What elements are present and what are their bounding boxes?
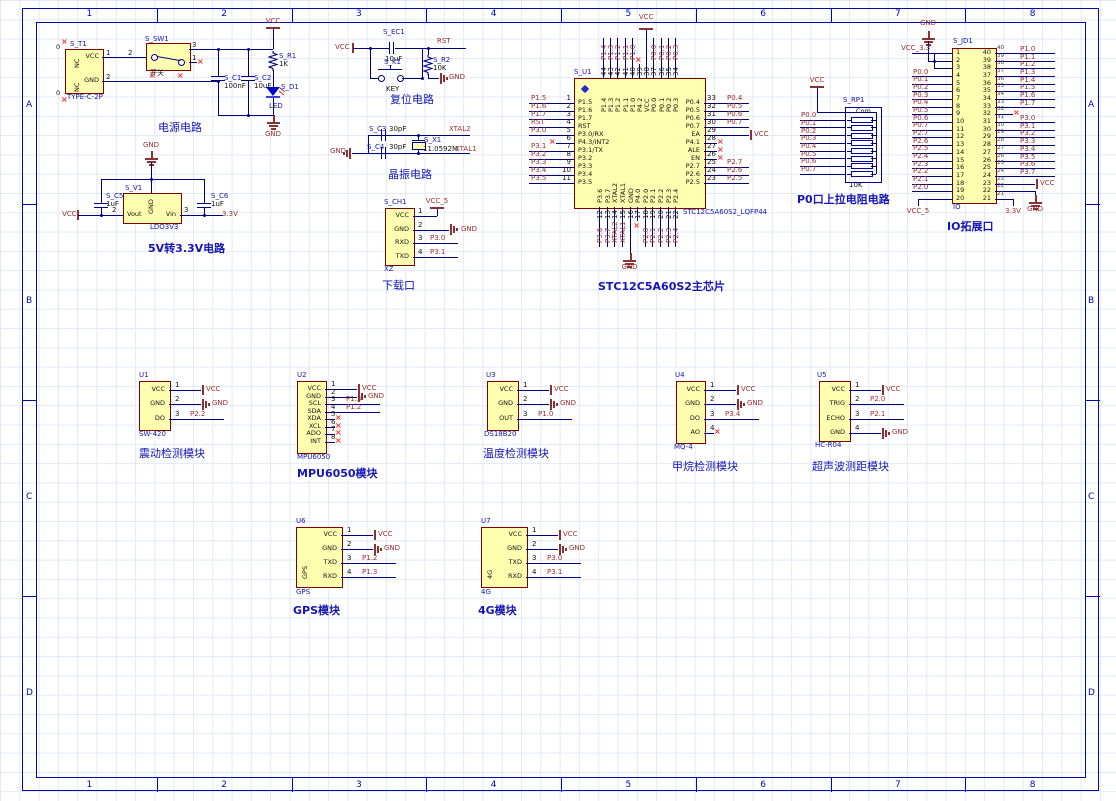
pin-number: 29	[983, 133, 991, 140]
net-label: P3.4	[1020, 146, 1035, 153]
designator: S_CH1	[384, 199, 407, 206]
frame-column-label: 1	[87, 10, 93, 19]
gnd-icon	[374, 544, 376, 555]
wire	[413, 230, 449, 231]
wire	[218, 81, 219, 115]
pin-number: 1	[331, 381, 335, 388]
pin-number: 22	[997, 184, 1004, 190]
wire	[169, 390, 201, 391]
wire	[918, 199, 919, 206]
wire	[696, 8, 697, 22]
wire	[630, 253, 632, 260]
net-label: P3.0	[430, 235, 445, 242]
net-label: P0.4	[727, 95, 742, 102]
net-label: XTAL1	[620, 221, 627, 243]
gnd-icon	[565, 548, 567, 551]
pin-name: P1.5	[578, 99, 592, 106]
pin-name: GND	[507, 545, 522, 552]
wire	[1013, 199, 1014, 206]
wire	[800, 174, 845, 175]
pin-number: 30	[997, 123, 1004, 129]
pin-number: 2	[347, 541, 351, 548]
designator: S_K1	[384, 59, 401, 66]
power-label: GND	[560, 400, 576, 407]
wire	[556, 143, 574, 144]
pin-number: 3	[532, 555, 536, 562]
pin-number: 37	[983, 72, 991, 79]
net-label: P0.4	[801, 143, 816, 150]
net-label: P0.7	[801, 166, 816, 173]
power-label: 3.3V	[1005, 208, 1021, 215]
contact-icon	[378, 75, 385, 82]
wire	[871, 120, 876, 121]
gnd-icon	[922, 38, 935, 40]
wire	[1086, 204, 1100, 205]
wire	[428, 48, 429, 55]
designator: S_JD1	[953, 38, 973, 45]
pin-number: 6	[956, 87, 960, 94]
wire	[529, 183, 574, 184]
pin-number: 1	[347, 527, 351, 534]
gnd-icon	[450, 224, 452, 235]
designator: S_X1	[424, 137, 441, 144]
nc-x-icon: ×	[197, 58, 204, 66]
power-label: GND	[212, 400, 228, 407]
designator: S_D1	[281, 84, 299, 91]
net-label: P1.3	[362, 569, 377, 576]
pin-number: 14	[956, 149, 964, 156]
pin-number: 27	[997, 146, 1004, 152]
pin-number: 25	[997, 161, 1004, 167]
pin-number: 34	[997, 92, 1004, 98]
wire	[413, 216, 437, 217]
wire	[341, 577, 396, 578]
net-label: P1.7	[531, 111, 546, 118]
pin-number: 30	[983, 126, 991, 133]
pin-number: 4	[347, 569, 351, 576]
section-title: 电源电路	[158, 122, 202, 133]
wire	[437, 209, 438, 216]
wire	[22, 400, 36, 401]
resistor-icon	[851, 117, 873, 123]
section-title: 复位电路	[390, 94, 434, 105]
pin-name: DO	[690, 415, 700, 422]
pin-number: 23	[983, 180, 991, 187]
designator: S_RP1	[843, 97, 864, 104]
pin-number: 2	[532, 541, 536, 548]
power-label: VCC	[886, 386, 901, 393]
net-label: P2.1	[913, 176, 928, 183]
wire	[341, 563, 396, 564]
wire	[325, 442, 335, 443]
net-label: P3.5	[531, 175, 546, 182]
pin-number: 38	[983, 64, 991, 71]
junction-dot	[247, 48, 250, 51]
net-label: P2.4	[913, 153, 928, 160]
power-label: GND	[920, 20, 936, 27]
pin-name: P1.7	[578, 115, 592, 122]
wire	[101, 179, 204, 180]
wire	[526, 549, 558, 550]
value: 10K	[433, 65, 447, 72]
power-label: VCC	[335, 44, 350, 51]
pin-number: 1	[192, 55, 196, 62]
gnd-icon	[443, 75, 445, 82]
nc-x-icon: ×	[61, 96, 68, 104]
designator: S_C1	[224, 75, 241, 82]
junction-dot	[217, 48, 220, 51]
pin-number: 7	[956, 95, 960, 102]
frame-row-label: D	[1088, 689, 1095, 698]
wire	[273, 29, 274, 49]
gnd-icon	[737, 399, 739, 410]
wire	[918, 199, 952, 200]
gnd-icon	[740, 401, 742, 408]
pin-number: 2	[710, 396, 714, 403]
wire	[102, 57, 146, 58]
pin-name: GND	[84, 77, 99, 84]
wire	[169, 404, 201, 405]
pin-number: 15	[956, 157, 964, 164]
pin-name: P2.2	[658, 189, 665, 203]
net-label: P1.0	[1020, 46, 1035, 53]
part-name: STC12C5A60S2_LQFP44	[683, 209, 767, 216]
wire	[151, 162, 152, 179]
pin-name: P2.4	[673, 189, 680, 203]
pin-name: P3.6	[597, 189, 604, 203]
power-label: VCC	[639, 14, 654, 21]
pin-number: 2	[112, 207, 116, 214]
pin-name: VCC	[323, 531, 337, 538]
resistor-icon	[851, 140, 873, 146]
value: 11.0592M	[423, 146, 458, 153]
pin-name: RXD	[323, 573, 337, 580]
frame-column-label: 8	[1030, 10, 1036, 19]
gnd-icon	[453, 226, 455, 233]
net-label: P3.2	[531, 151, 546, 158]
wire	[704, 183, 749, 184]
section-title: 超声波测距模块	[812, 461, 889, 472]
pin-number: 7	[567, 143, 571, 150]
value: 100nF	[224, 83, 246, 90]
pin-number: 24	[707, 167, 716, 174]
nc-x-icon: ×	[177, 72, 184, 80]
pin-number: 1	[710, 382, 714, 389]
power-label: VCC	[62, 211, 77, 218]
pin-number: 4	[855, 425, 859, 432]
wire	[378, 69, 402, 70]
junction-dot	[150, 178, 153, 181]
pin-name: GND	[830, 429, 845, 436]
power-label: VCC	[1040, 180, 1055, 187]
pin-number: 10	[956, 118, 964, 125]
pin-name: P1.6	[578, 107, 592, 114]
wire	[526, 577, 581, 578]
net-label: P3.1	[430, 249, 445, 256]
pin-number: 1	[106, 50, 110, 57]
pin-number: 24	[983, 172, 991, 179]
junction-dot	[100, 214, 103, 217]
wire	[995, 176, 1055, 177]
power-label: VCC	[741, 386, 756, 393]
pin-number: 8	[567, 151, 571, 158]
pin-number: 3	[956, 64, 960, 71]
wire	[517, 419, 572, 420]
pin-name: VCC	[151, 386, 165, 393]
wire	[704, 404, 736, 405]
pin-name: P4.3/INT2	[578, 139, 609, 146]
net-label: P1.6	[531, 103, 546, 110]
pin-name: VCC	[395, 212, 409, 219]
power-label: VCC	[563, 531, 578, 538]
schematic-canvas[interactable]: 1122334455667788AABBCCDDS_T1NCNCVCCGNDTY…	[0, 0, 1116, 801]
wire	[325, 389, 357, 390]
section-title: IO拓展口	[947, 221, 993, 232]
wire	[180, 215, 223, 216]
pin-name: P3.3	[578, 163, 592, 170]
pin-number: 4	[956, 72, 960, 79]
wire	[871, 127, 876, 128]
part-name: GPS	[296, 589, 310, 596]
part-name: MPU6050	[297, 454, 330, 461]
part-name: LDO3V3	[150, 224, 179, 231]
resistor-icon	[851, 171, 873, 177]
section-title: 5V转3.3V电路	[148, 243, 225, 254]
section-title: P0口上拉电阻电路	[797, 194, 890, 205]
power-label: GND	[143, 142, 159, 149]
value: 30pF	[389, 144, 406, 151]
wire	[871, 174, 876, 175]
wire	[696, 778, 697, 792]
power-label: VCC_3.3	[901, 45, 930, 52]
wire	[157, 778, 158, 792]
wire	[197, 203, 211, 204]
power-label: GND	[461, 226, 477, 233]
net-label: P3.0	[547, 555, 562, 562]
gnd-icon	[885, 430, 887, 437]
pin-number: 1	[855, 382, 859, 389]
resistor-icon	[851, 156, 873, 162]
power-label: GND	[1027, 206, 1043, 213]
net-label: P1.3	[1020, 69, 1035, 76]
pin-number: 1	[956, 49, 960, 56]
pin-name: INT	[310, 438, 321, 445]
wire	[876, 112, 877, 174]
pin-number: 29	[997, 130, 1004, 136]
pin-name: XTAL1	[620, 183, 627, 203]
pin-number: 32	[707, 103, 716, 110]
pin-number: 21	[983, 195, 991, 202]
section-title: 4G模块	[478, 605, 517, 616]
pin-number: 5	[567, 127, 571, 134]
pin-name: RXD	[508, 573, 522, 580]
power-label: GND	[449, 74, 465, 81]
pin-number: 32	[983, 110, 991, 117]
pin-name: VCC	[499, 386, 513, 393]
pin-name: P3.1/TX	[578, 147, 603, 154]
wire	[849, 404, 904, 405]
gnd-icon	[623, 260, 636, 262]
pin-name: P2.5	[686, 179, 700, 186]
pin-number: 16	[956, 164, 964, 171]
wire	[385, 147, 386, 159]
pin-name: P0.5	[686, 107, 700, 114]
frame-column-label: 7	[895, 10, 901, 19]
wire	[831, 778, 832, 792]
value: 10K	[849, 182, 863, 189]
wire	[995, 199, 1013, 200]
gnd-icon	[553, 401, 555, 408]
wire	[704, 390, 736, 391]
pin-name: RXD	[395, 239, 409, 246]
frame-column-label: 5	[626, 10, 632, 19]
wire	[871, 166, 876, 167]
wire	[934, 68, 952, 69]
pin-number: 12	[597, 210, 604, 219]
net-label: P0.2	[913, 84, 928, 91]
frame-row-label: C	[1088, 493, 1094, 502]
pin-name: XTAL2	[612, 183, 619, 203]
gnd-icon	[440, 73, 442, 84]
net-label: P2.6	[727, 167, 742, 174]
nc-x-icon: ×	[1013, 109, 1020, 117]
wire	[218, 49, 219, 76]
pin-number: 11	[956, 126, 964, 133]
net-label: P3.6	[597, 228, 604, 243]
pin-name: VCC	[85, 53, 99, 60]
pin-number: 2	[128, 50, 132, 57]
wire	[189, 62, 197, 63]
pin-name: GND	[685, 400, 700, 407]
gnd-icon	[364, 395, 366, 398]
junction-dot	[247, 114, 250, 117]
pin-name: P4.1	[686, 139, 700, 146]
pin-number: 35	[983, 87, 991, 94]
wire	[871, 158, 876, 159]
power-label: VCC	[554, 386, 569, 393]
wire	[370, 48, 371, 78]
wire	[704, 419, 759, 420]
pin-number: 26	[997, 154, 1004, 160]
wire	[517, 390, 549, 391]
pin-number: 3	[523, 411, 527, 418]
wire	[204, 179, 205, 203]
pin-number: 38	[997, 61, 1004, 67]
power-label: GND	[265, 131, 281, 138]
resistor-icon	[423, 55, 433, 75]
wire	[871, 135, 876, 136]
net-label: P2.5	[727, 175, 742, 182]
wire	[849, 390, 881, 391]
pin-name: P0.3	[673, 98, 680, 112]
section-title: 震动检测模块	[139, 448, 205, 459]
pin-name: GND	[498, 400, 513, 407]
gnd-icon	[343, 152, 345, 155]
pin-name: AO	[691, 429, 700, 436]
pin-name: Vout	[127, 211, 142, 218]
pin-name: ALE	[688, 147, 700, 154]
pin-number: 23	[707, 175, 716, 182]
pin-number: 19	[956, 187, 964, 194]
net-label: P3.7	[1020, 169, 1035, 176]
wire	[817, 112, 845, 113]
designator: S_C3	[369, 126, 386, 133]
gnd-icon	[269, 125, 278, 127]
frame-row-label: A	[1088, 101, 1094, 110]
gnd-icon	[145, 158, 158, 160]
pin-number: 20	[956, 195, 964, 202]
frame-column-label: 2	[221, 10, 227, 19]
wire	[965, 778, 966, 792]
frame-column-label: 2	[221, 781, 227, 790]
section-title: 晶振电路	[388, 169, 432, 180]
wire	[965, 8, 966, 22]
value: 1uF	[211, 201, 224, 208]
value: 1K	[279, 61, 288, 68]
wire	[1035, 195, 1037, 202]
label: KEY	[386, 86, 399, 93]
net-label: RST	[531, 119, 545, 126]
designator: U3	[486, 372, 496, 379]
pin-name: P2.1	[650, 189, 657, 203]
pin-number: 8	[956, 103, 960, 110]
pin-name: P4.0	[635, 189, 642, 203]
wire	[341, 549, 373, 550]
pin-number: 40	[983, 49, 991, 56]
pin-name: TXD	[396, 253, 409, 260]
pin-number: 27	[983, 149, 991, 156]
wire	[849, 433, 881, 434]
section-title: 甲烷检测模块	[672, 461, 738, 472]
wire	[102, 81, 218, 82]
designator: S_C2	[254, 75, 271, 82]
gnd-icon	[456, 228, 458, 231]
wire	[817, 88, 818, 112]
wire	[995, 107, 1055, 108]
pin-number: 0	[56, 44, 60, 51]
net-label: P1.2	[362, 555, 377, 562]
pin-number: 25	[707, 159, 716, 166]
pin-number: 34	[673, 67, 680, 76]
pin-name: P2.6	[686, 171, 700, 178]
gnd-icon	[562, 546, 564, 553]
pin-name: P2.7	[686, 163, 700, 170]
power-label: VCC_5	[426, 198, 449, 205]
wire	[248, 81, 249, 115]
pin-number: 4	[567, 119, 571, 126]
wire	[393, 42, 394, 54]
pin-name: VCC	[686, 386, 700, 393]
pin-name: GND	[394, 226, 409, 233]
pin-number: 28	[983, 141, 991, 148]
wire	[831, 8, 832, 22]
net-label: P2.0	[870, 396, 885, 403]
pin-number: 23	[997, 177, 1004, 183]
section-title: 下载口	[382, 280, 415, 291]
wire	[426, 8, 427, 22]
vcc-power-icon	[882, 385, 884, 395]
wire	[849, 419, 904, 420]
gnd-icon	[888, 432, 890, 435]
designator: S_U1	[574, 69, 592, 76]
nc-x-icon: ×	[61, 38, 68, 46]
part-name: IO	[953, 204, 961, 211]
designator: U7	[481, 518, 491, 525]
designator: U1	[139, 372, 149, 379]
pin-name: NC	[74, 83, 81, 92]
resistor-icon	[851, 125, 873, 131]
pin-number: 3	[347, 555, 351, 562]
